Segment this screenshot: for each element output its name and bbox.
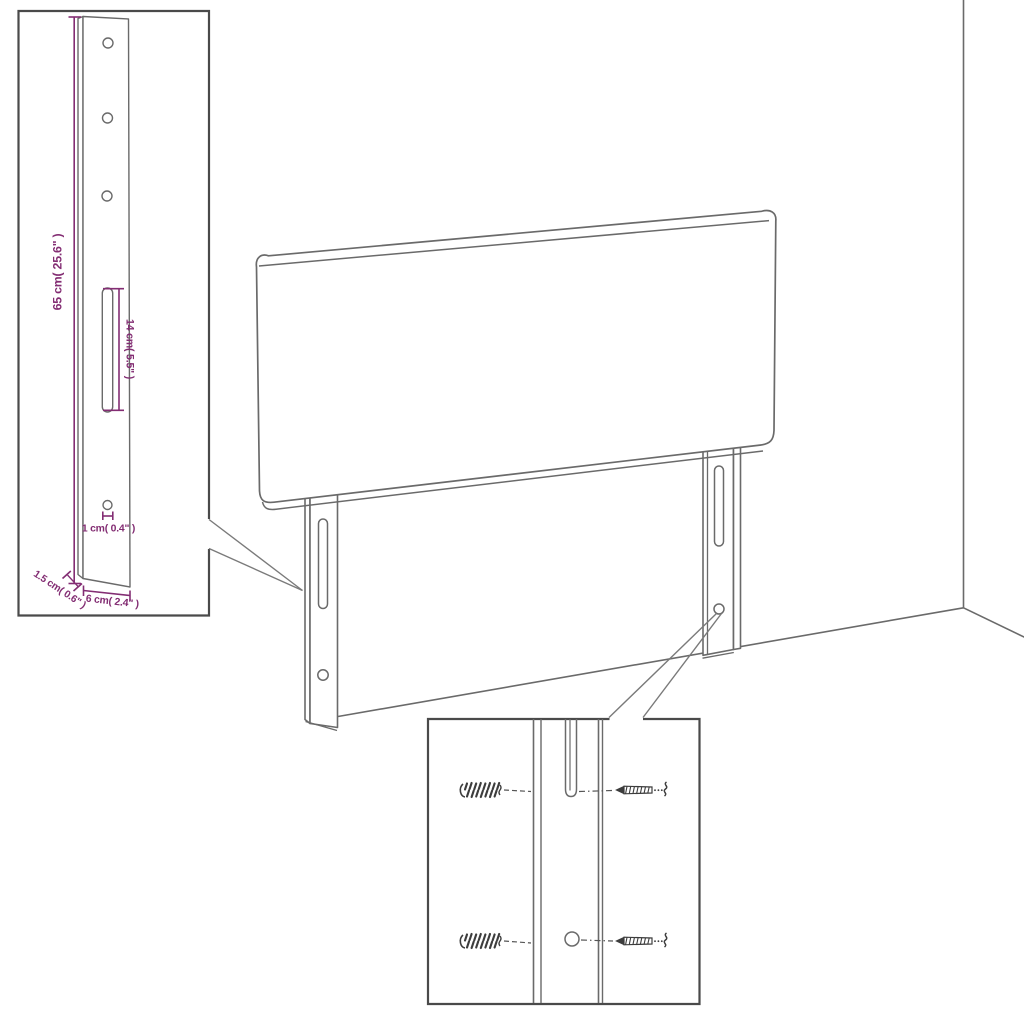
inset-leg-slot	[102, 288, 112, 412]
right-leg	[703, 440, 741, 658]
leg-height-label: 65 cm( 25.6" )	[51, 233, 65, 310]
hole-diameter-label: 1 cm( 0.4" )	[82, 524, 135, 535]
right-leg-side-face	[734, 440, 741, 650]
slot-length-label: 14 cm( 5.5" )	[124, 319, 136, 379]
right-leg-hole	[714, 604, 724, 614]
inset-leg-hole-2	[103, 113, 113, 123]
callout-line-left	[609, 614, 717, 718]
headboard-panel	[256, 211, 776, 510]
right-leg-slot	[715, 466, 724, 546]
inset-leg-lower-hole	[103, 501, 112, 510]
hardware-inset-border	[428, 719, 700, 1004]
floor-edge-left	[338, 608, 964, 717]
floor-edge-right	[964, 608, 1024, 638]
left-leg-hole	[318, 670, 328, 680]
assembly-diagram: 65 cm( 25.6" ) 14 cm( 5.5" ) 1 cm( 0.4" …	[0, 0, 1024, 1024]
callout-line-right	[643, 614, 722, 718]
diagram-canvas: 65 cm( 25.6" ) 14 cm( 5.5" ) 1 cm( 0.4" …	[0, 0, 1024, 1024]
inset-leg-hole-1	[103, 38, 113, 48]
inset-leg-side-face	[78, 17, 83, 579]
left-leg	[305, 470, 338, 731]
inset-leg-hole-3	[102, 191, 112, 201]
left-leg-slot	[319, 519, 328, 609]
hardware-inset	[428, 614, 722, 1005]
